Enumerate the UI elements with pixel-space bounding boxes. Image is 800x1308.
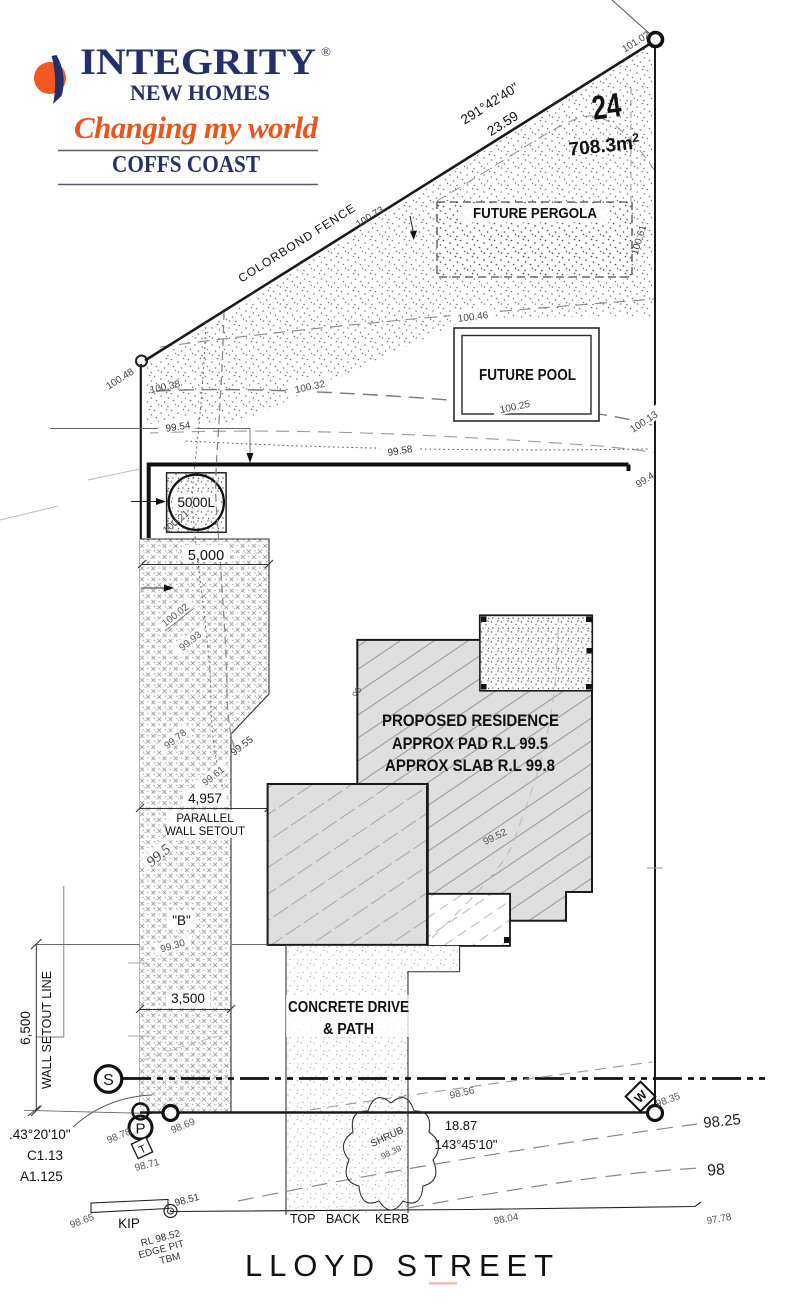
svg-text:143°45'10": 143°45'10" (435, 1137, 498, 1152)
svg-text:INTEGRITY: INTEGRITY (80, 42, 316, 83)
svg-text:& PATH: & PATH (323, 1021, 374, 1038)
svg-text:COFFS COAST: COFFS COAST (112, 152, 260, 178)
svg-text:98.04: 98.04 (493, 1212, 520, 1227)
svg-text:98.56: 98.56 (449, 1085, 476, 1101)
svg-text:FUTURE POOL: FUTURE POOL (479, 367, 576, 384)
svg-text:WALL SETOUT: WALL SETOUT (165, 826, 245, 838)
svg-text:5,000: 5,000 (188, 548, 224, 564)
svg-text:NEW HOMES: NEW HOMES (130, 80, 270, 105)
svg-text:APPROX SLAB R.L 99.8: APPROX SLAB R.L 99.8 (385, 757, 555, 775)
svg-text:.43°20'10": .43°20'10" (9, 1127, 71, 1142)
svg-text:100.48: 100.48 (104, 366, 136, 392)
svg-text:KERB: KERB (375, 1212, 409, 1226)
svg-text:PARALLEL: PARALLEL (176, 813, 234, 825)
svg-text:98.35: 98.35 (655, 1091, 683, 1110)
svg-text:Changing my world: Changing my world (74, 110, 319, 145)
svg-text:®: ® (321, 44, 331, 59)
svg-text:98.78: 98.78 (106, 1127, 134, 1147)
svg-text:100.46: 100.46 (457, 310, 489, 325)
svg-text:A1.125: A1.125 (20, 1169, 63, 1184)
svg-text:APPROX PAD R.L 99.5: APPROX PAD R.L 99.5 (392, 735, 548, 753)
svg-text:4,957: 4,957 (188, 791, 222, 806)
svg-text:98.65: 98.65 (69, 1212, 97, 1231)
svg-text:FUTURE PERGOLA: FUTURE PERGOLA (473, 205, 597, 222)
svg-text:6,500: 6,500 (18, 1011, 33, 1045)
svg-text:P: P (135, 1121, 145, 1138)
svg-text:C1.13: C1.13 (27, 1148, 63, 1163)
svg-text:98.25: 98.25 (702, 1111, 741, 1132)
svg-text:98: 98 (707, 1161, 726, 1179)
svg-text:98.51: 98.51 (174, 1192, 201, 1209)
svg-text:18.87: 18.87 (445, 1118, 478, 1133)
svg-text:"B": "B" (172, 913, 191, 928)
svg-text:LLOYD STREET: LLOYD STREET (245, 1248, 553, 1283)
svg-text:TOP: TOP (290, 1212, 315, 1226)
svg-text:BACK: BACK (326, 1212, 361, 1226)
svg-text:24: 24 (590, 86, 624, 128)
svg-text:KIP: KIP (118, 1216, 140, 1231)
svg-text:S: S (103, 1072, 114, 1089)
svg-text:WALL SETOUT LINE: WALL SETOUT LINE (40, 971, 54, 1089)
svg-text:97.78: 97.78 (706, 1212, 733, 1227)
svg-text:3,500: 3,500 (171, 991, 205, 1006)
svg-text:5000L: 5000L (178, 495, 216, 510)
svg-text:99.54: 99.54 (165, 420, 192, 434)
svg-text:99.55: 99.55 (229, 734, 256, 758)
svg-text:CONCRETE DRIVE: CONCRETE DRIVE (288, 999, 409, 1016)
svg-text:PROPOSED RESIDENCE: PROPOSED RESIDENCE (382, 712, 559, 730)
svg-text:99.4: 99.4 (634, 470, 657, 490)
